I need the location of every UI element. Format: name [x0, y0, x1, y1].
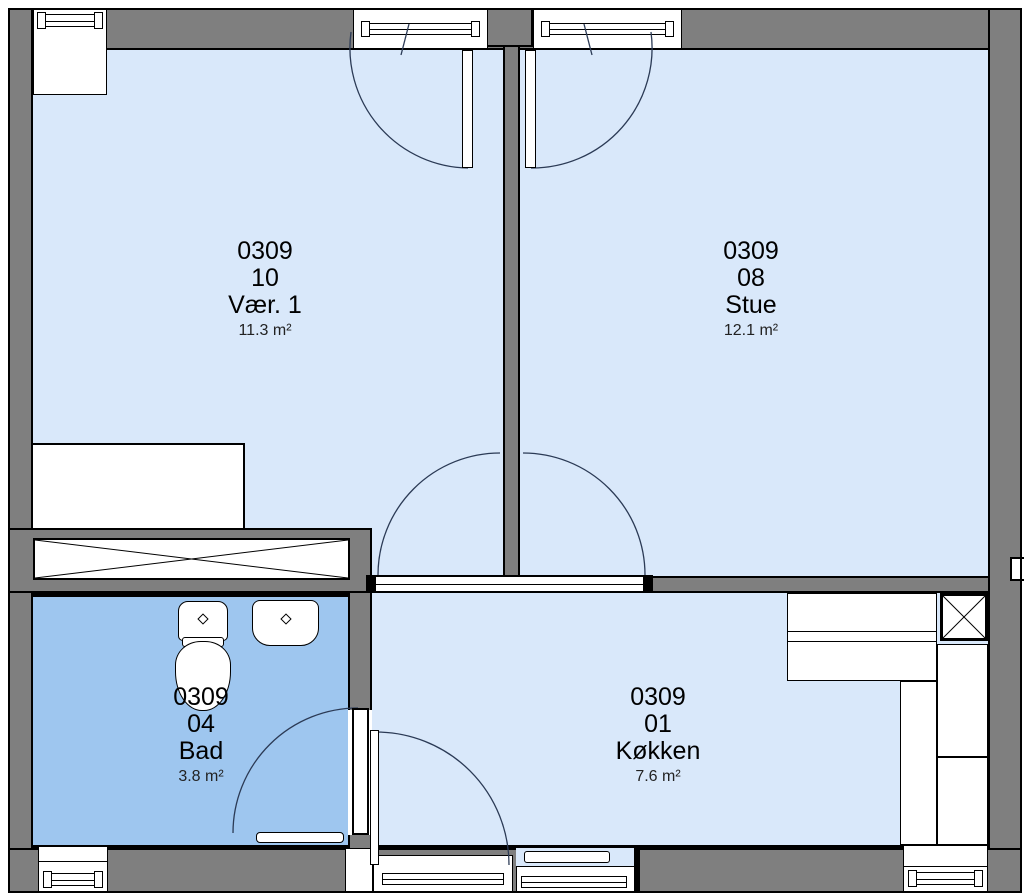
wall-bad-right-upper — [348, 593, 372, 710]
wall-center-divider — [503, 47, 520, 577]
flush-button-icon — [197, 613, 208, 624]
window-glass-icon — [39, 14, 101, 27]
wall-top-pier — [486, 8, 533, 47]
counter-divider-line — [788, 631, 936, 632]
room-area: 7.6 m² — [548, 767, 768, 786]
window-sill-kitchen-2 — [516, 848, 636, 866]
bath-mat-icon — [256, 832, 344, 843]
duct-shaft-x-icon — [33, 538, 350, 580]
window-sill-line — [904, 866, 987, 867]
partition-track — [366, 575, 653, 593]
room-number: 0309 — [155, 238, 375, 265]
window-bottom-kitchen-1 — [373, 855, 513, 893]
kitchen-counter-icon — [900, 681, 937, 845]
wall-stue-bottom — [650, 576, 988, 593]
window-sill-line — [39, 861, 107, 862]
kitchen-counter-icon — [937, 757, 988, 845]
kitchen-counter-icon — [937, 644, 988, 757]
floor-plan: 0309 10 Vær. 1 11.3 m² 0309 08 Stue 12.1… — [0, 0, 1024, 895]
room-unit: 10 — [155, 265, 375, 292]
window-glass-icon — [521, 876, 627, 888]
window-cap — [43, 871, 52, 888]
room-area: 3.8 m² — [91, 767, 311, 786]
window-bottom-kitchen-2 — [516, 866, 636, 893]
room-label-stue: 0309 08 Stue 12.1 m² — [641, 238, 861, 340]
door-leaf-icon — [370, 730, 379, 865]
room-label-koekken: 0309 01 Køkken 7.6 m² — [548, 684, 768, 786]
window-cap — [908, 870, 917, 887]
window-cap — [541, 21, 550, 37]
door-threshold-bad-bottom — [345, 848, 373, 893]
kitchen-counter-icon — [787, 593, 937, 681]
window-cap — [974, 870, 983, 887]
radiator — [524, 851, 610, 863]
sink-icon — [252, 600, 319, 646]
door-leaf-icon — [352, 708, 369, 835]
window-bottom-left — [38, 846, 108, 893]
window-top-a — [353, 8, 488, 49]
wall-right-notch — [1010, 557, 1024, 581]
window-top-b — [533, 8, 682, 49]
door-leaf-icon — [525, 50, 536, 168]
track-end-cap — [366, 575, 376, 593]
room-name: Køkken — [548, 738, 768, 765]
wall-left — [8, 8, 33, 893]
track-end-cap — [643, 575, 653, 593]
wall-right — [988, 8, 1022, 893]
room-name: Vær. 1 — [155, 292, 375, 319]
room-unit: 08 — [641, 265, 861, 292]
room-number: 0309 — [548, 684, 768, 711]
room-label-bad: 0309 04 Bad 3.8 m² — [91, 684, 311, 786]
window-cap — [94, 12, 103, 29]
room-name: Stue — [641, 292, 861, 319]
window-glass-icon — [382, 873, 504, 885]
toilet-icon — [178, 601, 228, 641]
window-glass-icon — [544, 23, 671, 35]
window-cap — [471, 21, 480, 37]
room-number: 0309 — [641, 238, 861, 265]
counter-divider-line — [788, 641, 936, 642]
window-bottom-right — [903, 845, 988, 893]
wardrobe-icon — [33, 443, 245, 528]
window-cap — [37, 12, 46, 29]
room-floor-vaer1-ext — [372, 528, 503, 575]
door-leaf-icon — [462, 50, 473, 168]
window-cap — [361, 21, 370, 37]
track-line — [368, 584, 651, 585]
room-name: Bad — [91, 738, 311, 765]
wall-bottom — [8, 848, 1022, 893]
window-cap — [665, 21, 674, 37]
duct-shaft-x-icon — [940, 593, 988, 641]
room-label-vaer1: 0309 10 Vær. 1 11.3 m² — [155, 238, 375, 340]
room-area: 12.1 m² — [641, 321, 861, 340]
wall-edge-kitchen-window — [634, 848, 640, 893]
room-unit: 01 — [548, 711, 768, 738]
window-glass-icon — [910, 872, 981, 885]
window-top-left — [33, 8, 107, 95]
room-unit: 04 — [91, 711, 311, 738]
window-cap — [94, 871, 103, 888]
room-area: 11.3 m² — [155, 321, 375, 340]
drain-icon — [280, 613, 291, 624]
window-glass-icon — [364, 23, 477, 35]
room-number: 0309 — [91, 684, 311, 711]
window-glass-icon — [45, 873, 101, 886]
wall-bad-right-lower — [348, 835, 372, 848]
